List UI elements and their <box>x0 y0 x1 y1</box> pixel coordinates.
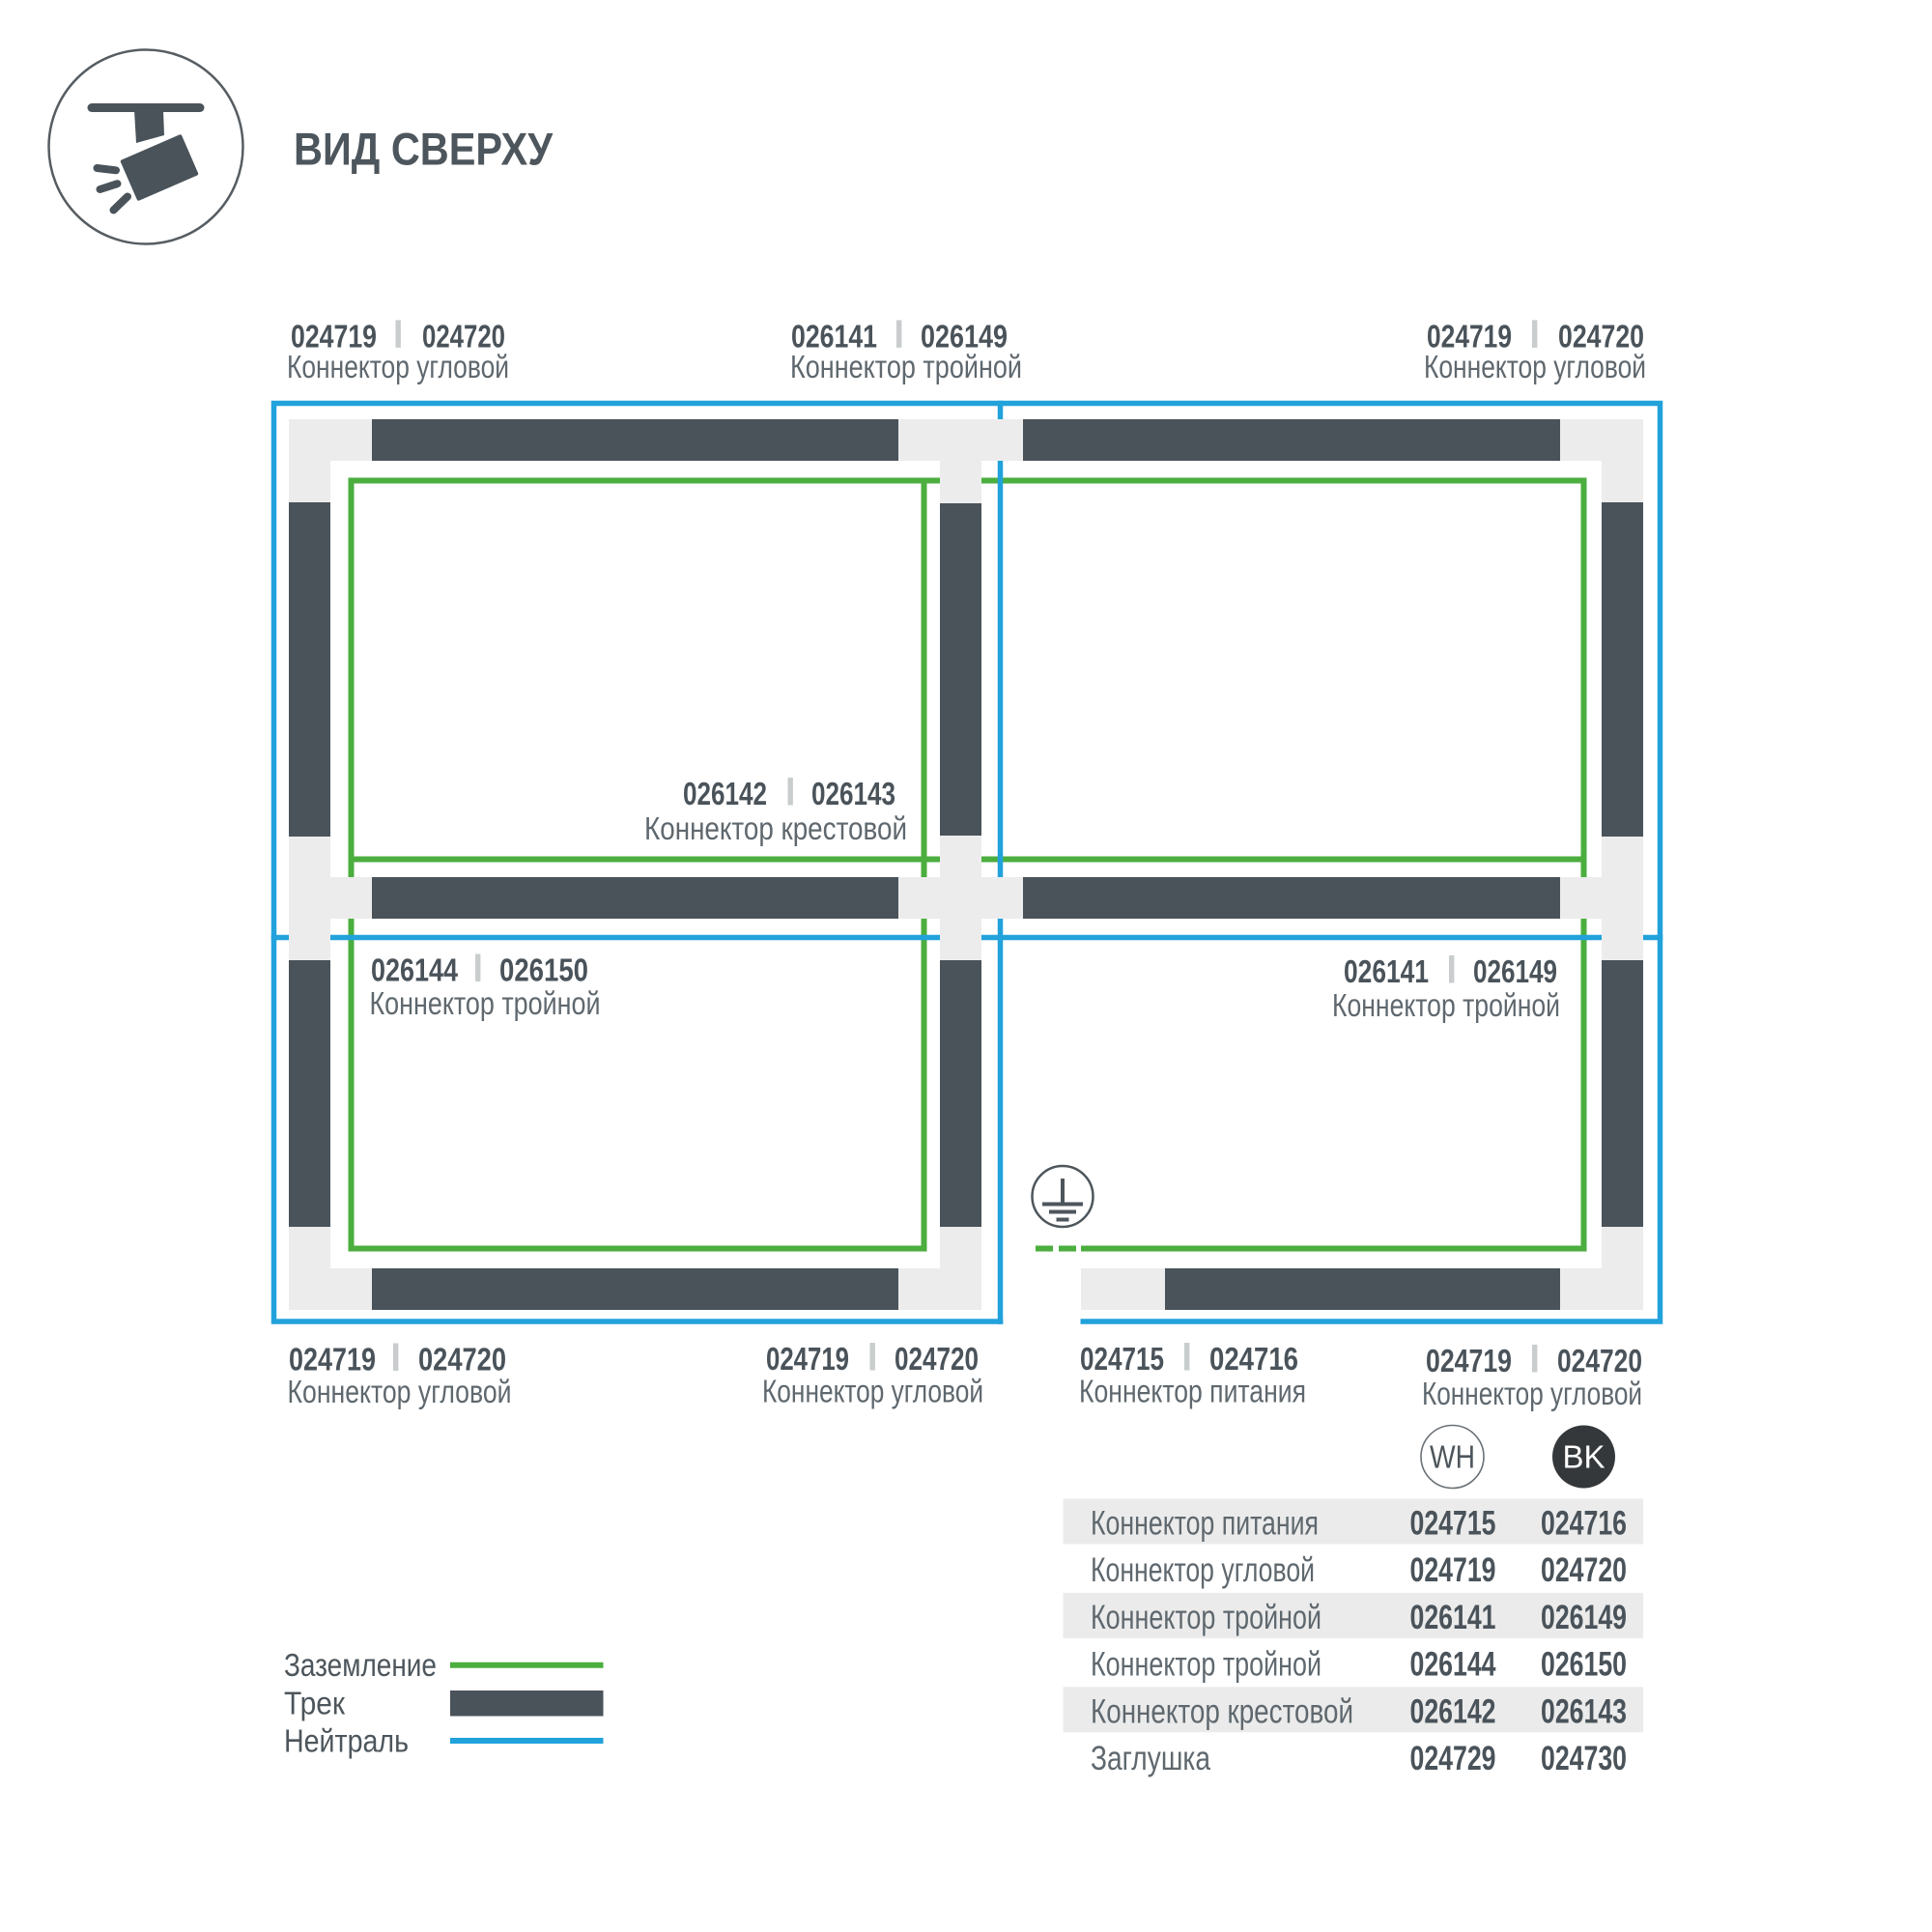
svg-text:026141: 026141 <box>1344 954 1429 990</box>
svg-text:024719: 024719 <box>289 1343 376 1378</box>
svg-text:026142: 026142 <box>683 777 767 812</box>
svg-text:024716: 024716 <box>1209 1342 1298 1378</box>
svg-text:024719: 024719 <box>766 1342 849 1378</box>
svg-text:024730: 024730 <box>1541 1740 1627 1777</box>
svg-text:Коннектор крестовой: Коннектор крестовой <box>644 811 907 847</box>
svg-text:026144: 026144 <box>371 953 458 989</box>
svg-text:Заземление: Заземление <box>284 1648 437 1684</box>
svg-text:Коннектор тройной: Коннектор тройной <box>790 350 1022 385</box>
svg-text:024715: 024715 <box>1080 1342 1164 1378</box>
svg-text:026150: 026150 <box>499 953 588 989</box>
svg-text:024720: 024720 <box>1541 1551 1627 1589</box>
svg-text:Коннектор тройной: Коннектор тройной <box>1332 988 1560 1024</box>
svg-text:024729: 024729 <box>1410 1740 1496 1777</box>
svg-text:024719: 024719 <box>1426 1344 1512 1379</box>
svg-text:Коннектор питания: Коннектор питания <box>1091 1505 1319 1543</box>
svg-text:026141: 026141 <box>1410 1599 1496 1636</box>
svg-text:024720: 024720 <box>1557 1344 1642 1379</box>
svg-text:026144: 026144 <box>1410 1646 1496 1684</box>
svg-text:024720: 024720 <box>895 1342 979 1378</box>
svg-text:Коннектор питания: Коннектор питания <box>1079 1375 1306 1410</box>
svg-text:WH: WH <box>1430 1440 1475 1476</box>
svg-text:Трек: Трек <box>284 1687 345 1722</box>
svg-text:Нейтраль: Нейтраль <box>284 1724 409 1760</box>
svg-text:Коннектор тройной: Коннектор тройной <box>1091 1599 1321 1636</box>
svg-text:024715: 024715 <box>1410 1505 1496 1543</box>
svg-text:026143: 026143 <box>811 777 895 812</box>
svg-text:BK: BK <box>1563 1440 1605 1476</box>
svg-text:Коннектор крестовой: Коннектор крестовой <box>1091 1692 1353 1730</box>
svg-text:024719: 024719 <box>1410 1551 1496 1589</box>
svg-text:Заглушка: Заглушка <box>1091 1740 1210 1777</box>
svg-text:026143: 026143 <box>1541 1692 1627 1730</box>
svg-text:Коннектор угловой: Коннектор угловой <box>288 1375 512 1410</box>
svg-text:Коннектор угловой: Коннектор угловой <box>762 1375 983 1410</box>
svg-text:Коннектор угловой: Коннектор угловой <box>1424 350 1646 385</box>
svg-text:026142: 026142 <box>1410 1692 1496 1730</box>
svg-text:ВИД СВЕРХУ: ВИД СВЕРХУ <box>294 124 553 175</box>
svg-text:026149: 026149 <box>1473 954 1557 990</box>
svg-text:026150: 026150 <box>1541 1646 1627 1684</box>
svg-text:024716: 024716 <box>1541 1505 1627 1543</box>
svg-text:Коннектор угловой: Коннектор угловой <box>1422 1377 1642 1412</box>
svg-text:Коннектор угловой: Коннектор угловой <box>1091 1551 1315 1589</box>
svg-text:024720: 024720 <box>418 1343 506 1378</box>
svg-text:Коннектор угловой: Коннектор угловой <box>287 350 509 385</box>
svg-text:Коннектор тройной: Коннектор тройной <box>370 986 601 1022</box>
svg-text:026149: 026149 <box>1541 1599 1627 1636</box>
svg-text:Коннектор тройной: Коннектор тройной <box>1091 1646 1321 1684</box>
